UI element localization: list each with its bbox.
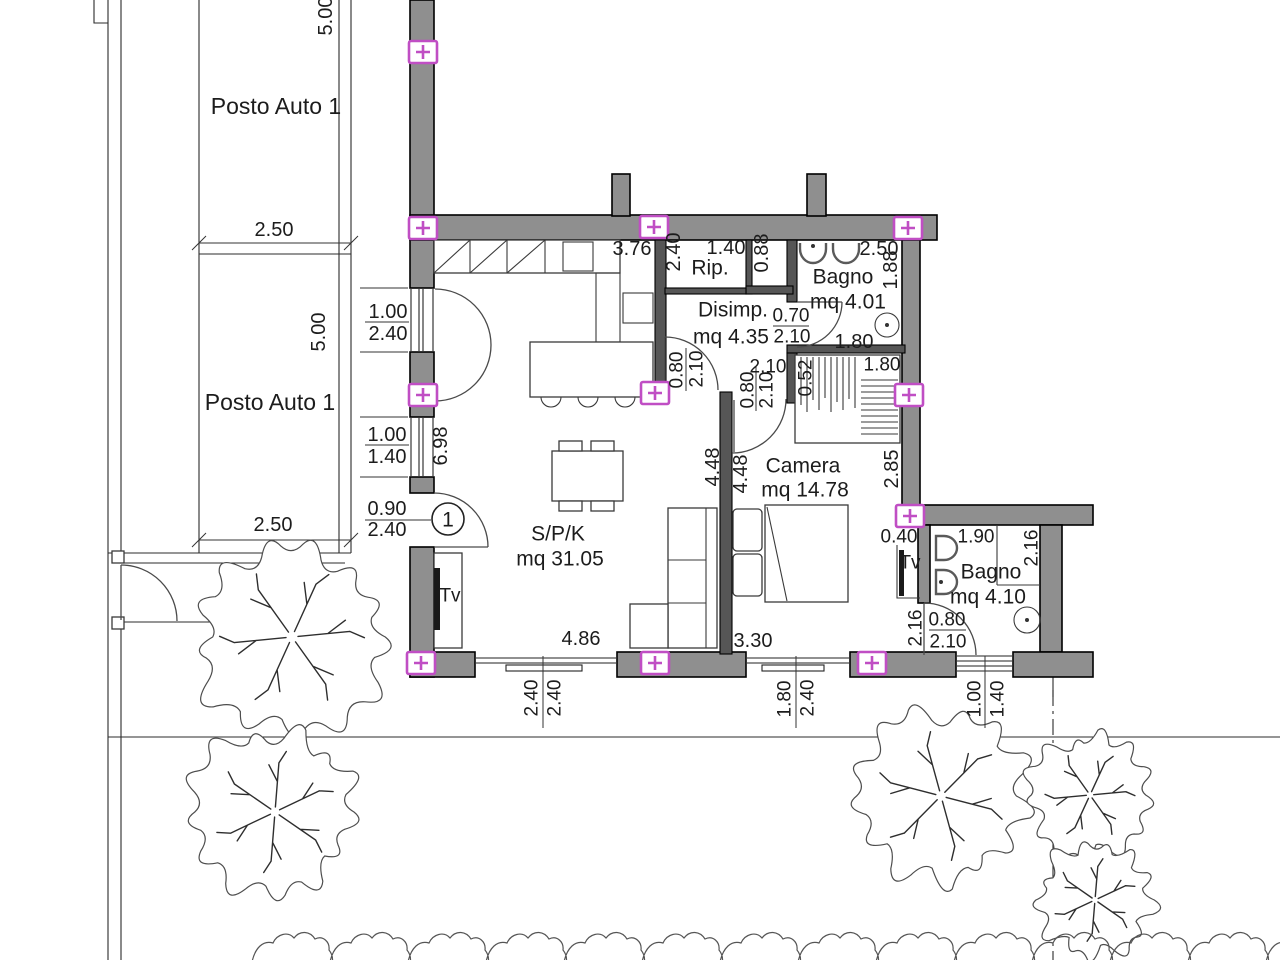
parking-area [108,0,358,553]
label-room-spk: S/P/K [531,522,585,545]
tree-canopy [198,540,391,736]
label-room-rip: Rip. [691,256,728,279]
label-dim-0-52: 0.52 [796,360,817,397]
bar-stools [541,397,635,407]
power-outlet-icon [407,652,435,674]
dining-table [552,441,623,511]
tree-canopy [851,705,1034,891]
window-bottom-camera [747,658,849,671]
power-outlet-icon [858,652,886,674]
label-dim-5-00-b: 5.00 [308,313,330,352]
ottoman [630,604,668,648]
bed [733,505,848,602]
label-dim-1-00-b: 1.00 [368,424,407,446]
partition [665,288,746,294]
label-dim-0-88: 0.88 [751,234,773,273]
power-outlet-icon [894,217,922,239]
fence-jog [94,0,108,23]
label-room-camera: Camera [766,454,841,477]
tree-canopy [186,725,359,901]
drain-dot [885,323,889,327]
label-room-disimp: Disimp. [698,298,768,321]
label-dim-6-98: 6.98 [430,427,452,466]
label-room-spk-area: mq 31.05 [516,547,604,570]
label-dim-2-40-d: 2.40 [522,680,543,717]
label-dim-1-90: 1.90 [958,527,995,548]
wall-stub [807,174,826,216]
label-tv-spk: Tv [439,586,461,607]
partition [746,286,793,294]
label-dim-2-40-a: 2.40 [369,323,408,345]
floor-plan-drawing: Posto Auto 1Posto Auto 15.002.505.002.50… [0,0,1280,960]
site-fences [94,0,121,960]
power-outlet-icon [409,217,437,239]
kitchen-peninsula [530,342,653,407]
label-dim-2-10-d: 2.10 [757,372,778,409]
power-outlet-icon [641,652,669,674]
window-bottom-large [476,658,616,671]
wall-segment [1013,652,1093,677]
gate-swing-arc [121,565,177,621]
power-outlet-icon [641,382,669,404]
sink [833,243,859,263]
pillow [733,509,762,551]
label-dim-1-88: 1.88 [880,251,902,290]
power-outlet-icon [895,384,923,406]
label-dim-0-80-a: 0.80 [667,352,688,389]
floor-plan-page: Posto Auto 1Posto Auto 15.002.505.002.50… [0,0,1280,960]
wall-segment [1040,525,1062,652]
label-dim-2-16-a: 2.16 [1022,530,1043,567]
label-dim-1-00-c: 1.00 [965,681,986,718]
label-dim-1-40-c: 1.40 [988,681,1009,718]
landscaping [186,540,1280,960]
label-dim-2-10-e: 2.10 [930,632,967,653]
label-dim-1-80-a: 1.80 [835,331,874,353]
power-outlet-icon [409,384,437,406]
wall-segment [902,505,1093,525]
fixture-dot [939,580,943,584]
label-unit-badge: 1 [442,508,454,531]
gate-post [112,617,124,629]
label-dim-4-48-a: 4.48 [702,448,724,487]
label-dim-2-50-b: 2.50 [254,514,293,536]
label-dim-3-76: 3.76 [613,238,652,260]
wall-segment [902,240,920,505]
label-dim-0-40: 0.40 [881,527,918,548]
label-dim-2-40-f: 2.40 [798,680,819,717]
label-dim-2-40-e: 2.40 [545,680,566,717]
label-dim-1-00-a: 1.00 [369,301,408,323]
label-posto-auto-1a: Posto Auto 1 [211,93,341,119]
label-room-bagno2-area: mq 4.10 [950,585,1026,608]
label-dim-4-86: 4.86 [562,628,601,650]
label-room-disimp-area: mq 4.35 [693,325,769,348]
wall-stub [612,174,630,216]
partition [720,392,732,654]
label-dim-3-30: 3.30 [734,630,773,652]
sofa [630,508,717,648]
label-dim-2-85: 2.85 [881,450,903,489]
label-dim-2-50-a: 2.50 [255,219,294,241]
faucet-dot [811,244,815,248]
label-dim-2-10-a: 2.10 [774,327,811,348]
label-dim-2-40-c: 2.40 [663,233,685,272]
label-tv-camera: Tv [899,553,921,574]
label-dim-5-00-a: 5.00 [315,0,337,35]
french-door-swing [435,289,491,401]
toilet [936,536,957,560]
label-dim-0-80-b: 0.80 [738,372,759,409]
label-dim-2-16-b: 2.16 [906,610,927,647]
label-dim-1-80-c: 1.80 [775,681,796,718]
label-dim-4-48-b: 4.48 [730,455,752,494]
label-room-bagno2: Bagno [961,560,1022,583]
label-room-camera-area: mq 14.78 [761,478,849,501]
wall-segment [617,652,746,677]
drain-dot [1025,618,1029,622]
window-left-a [411,289,433,351]
power-outlet-icon [896,505,924,527]
wall-segment [410,477,434,493]
label-posto-auto-1b: Posto Auto 1 [205,389,335,415]
label-dim-0-80-c: 0.80 [929,610,966,631]
label-dim-2-40-b: 2.40 [368,519,407,541]
label-room-bagno1-area: mq 4.01 [810,290,886,313]
power-outlet-icon [409,41,437,63]
label-dim-1-80-b: 1.80 [864,355,901,376]
label-dim-0-90: 0.90 [368,498,407,520]
pillow [733,554,762,596]
label-room-bagno1: Bagno [813,265,874,288]
gate-post [112,551,124,563]
label-dim-0-70: 0.70 [773,306,810,327]
label-dim-2-10-c: 2.10 [687,351,708,388]
label-dim-1-40-a: 1.40 [368,446,407,468]
